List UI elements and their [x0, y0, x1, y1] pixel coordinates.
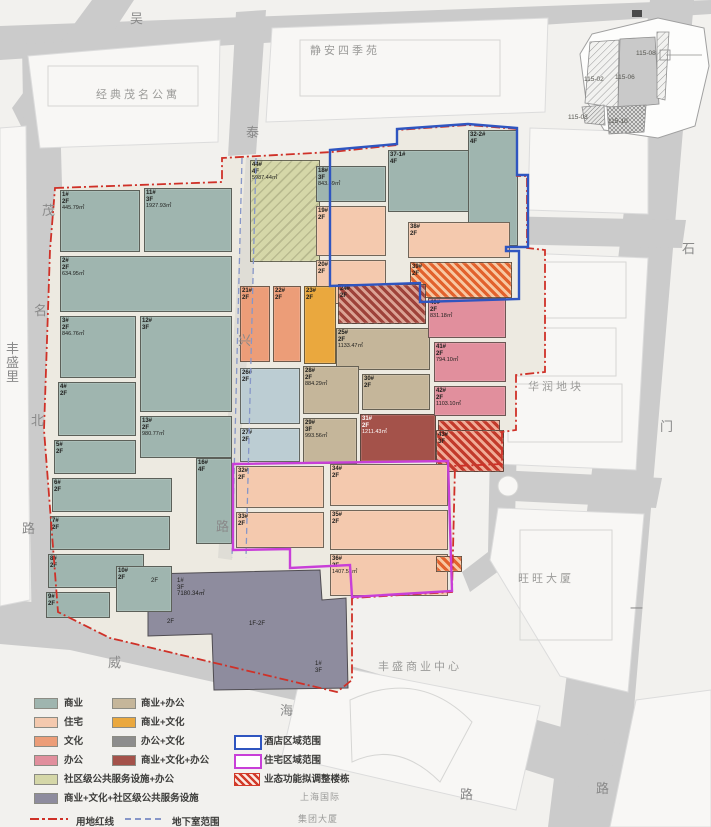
inset-parcel-label: 115-08 [636, 50, 656, 57]
building-block-43 [436, 556, 462, 572]
building-31#: 31#2F1211.43㎡ [360, 414, 436, 462]
annotation-0: 2F [150, 577, 159, 586]
street-label: 一 [630, 598, 644, 617]
building-22#: 22#2F [273, 286, 301, 362]
building-9#: 9#2F [46, 592, 110, 618]
building-2#: 2#2F634.95㎡ [60, 256, 232, 312]
key-map-drawing [562, 8, 711, 142]
building-11#: 11#3F1927.93㎡ [144, 188, 232, 252]
annotation-2: 2F [166, 618, 175, 627]
building-7#: 7#2F [50, 516, 170, 550]
building-34#: 34#2F [330, 464, 448, 506]
street-label: 泰 [246, 122, 260, 141]
building-38#: 38#2F [408, 222, 510, 258]
street-label: 路 [22, 518, 36, 537]
street-label: 路 [216, 516, 230, 535]
street-label: 茂 [42, 200, 56, 219]
landmark-label: 旺旺大厦 [518, 570, 574, 586]
inset-parcel-label: 115-06 [615, 74, 635, 81]
key-map-inset: 115-02115-06115-08115-03115-10 [562, 8, 711, 142]
building-1#: 1#2F445.79㎡ [60, 190, 140, 252]
building-37-1#: 37-1#4F [388, 150, 474, 212]
annotation-4: 1# 3F [314, 660, 323, 675]
building-35#: 35#2F [330, 510, 448, 550]
street-label: 路 [596, 778, 610, 797]
building-36#: 36#2F1407.51㎡ [330, 554, 448, 596]
building-6#: 6#2F [52, 478, 172, 512]
inset-parcel-label: 115-02 [584, 76, 604, 83]
building-23#: 23#2F [304, 286, 336, 364]
street-label: 北 [31, 410, 45, 429]
building-40#: 40#2F831.18㎡ [428, 298, 506, 338]
inset-parcel-label: 115-10 [608, 118, 628, 125]
annotation-3: 1F-2F [248, 620, 266, 629]
inset-parcel-label: 115-03 [568, 114, 588, 121]
site-plan-map: 115-02115-06115-08115-03115-10 商业住宅文化办公商… [0, 0, 711, 827]
street-label: 名 [34, 300, 48, 319]
building-26#: 26#2F [240, 368, 300, 424]
landmark-label: 上海国际 [300, 790, 340, 803]
building-41#: 41#2F794.10㎡ [434, 342, 506, 382]
street-label: 门 [660, 416, 674, 435]
building-13#: 13#2F980.77㎡ [140, 416, 232, 458]
building-29#: 29#3F993.56㎡ [303, 418, 357, 464]
street-label: 里 [6, 366, 20, 385]
building-5#: 5#2F [54, 440, 136, 474]
building-10#: 10#2F [116, 566, 172, 612]
street-label: 石 [682, 238, 696, 257]
landmark-label: 丰盛商业中心 [378, 658, 462, 674]
building-27#: 27#2F [240, 428, 300, 462]
building-32#: 32#2F [236, 466, 324, 508]
building-25#: 25#2F1133.47㎡ [336, 328, 430, 370]
building-28#: 28#2F884.29㎡ [303, 366, 359, 414]
building-19#: 19#2F [316, 206, 386, 256]
landmark-label: 集团大厦 [298, 812, 338, 825]
building-30#: 30#2F [362, 374, 430, 410]
landmark-label: 静安四季苑 [310, 42, 380, 58]
landmark-label: 华润地块 [528, 378, 584, 394]
building-24#: 24#2F [338, 284, 426, 324]
building-21#: 21#2F [240, 286, 270, 362]
building-18#: 18#3F843.49㎡ [316, 166, 386, 202]
street-label: 威 [108, 652, 122, 671]
street-label: 吴 [130, 8, 144, 27]
building-33#: 33#2F [236, 512, 324, 548]
street-label: 路 [460, 784, 474, 803]
landmark-label: 经典茂名公寓 [96, 86, 180, 102]
building-44#: 44#4F5987.44㎡ [250, 160, 320, 262]
building-4#: 4#2F [58, 382, 136, 436]
street-label: 兴 [238, 330, 252, 349]
building-3#: 3#2F846.76㎡ [60, 316, 136, 378]
street-label: 海 [280, 700, 294, 719]
annotation-1: 1# 3F 7180.34㎡ [176, 577, 206, 599]
building-42#: 42#2F1103.10㎡ [434, 386, 506, 416]
building-12#: 12#3F [140, 316, 232, 412]
